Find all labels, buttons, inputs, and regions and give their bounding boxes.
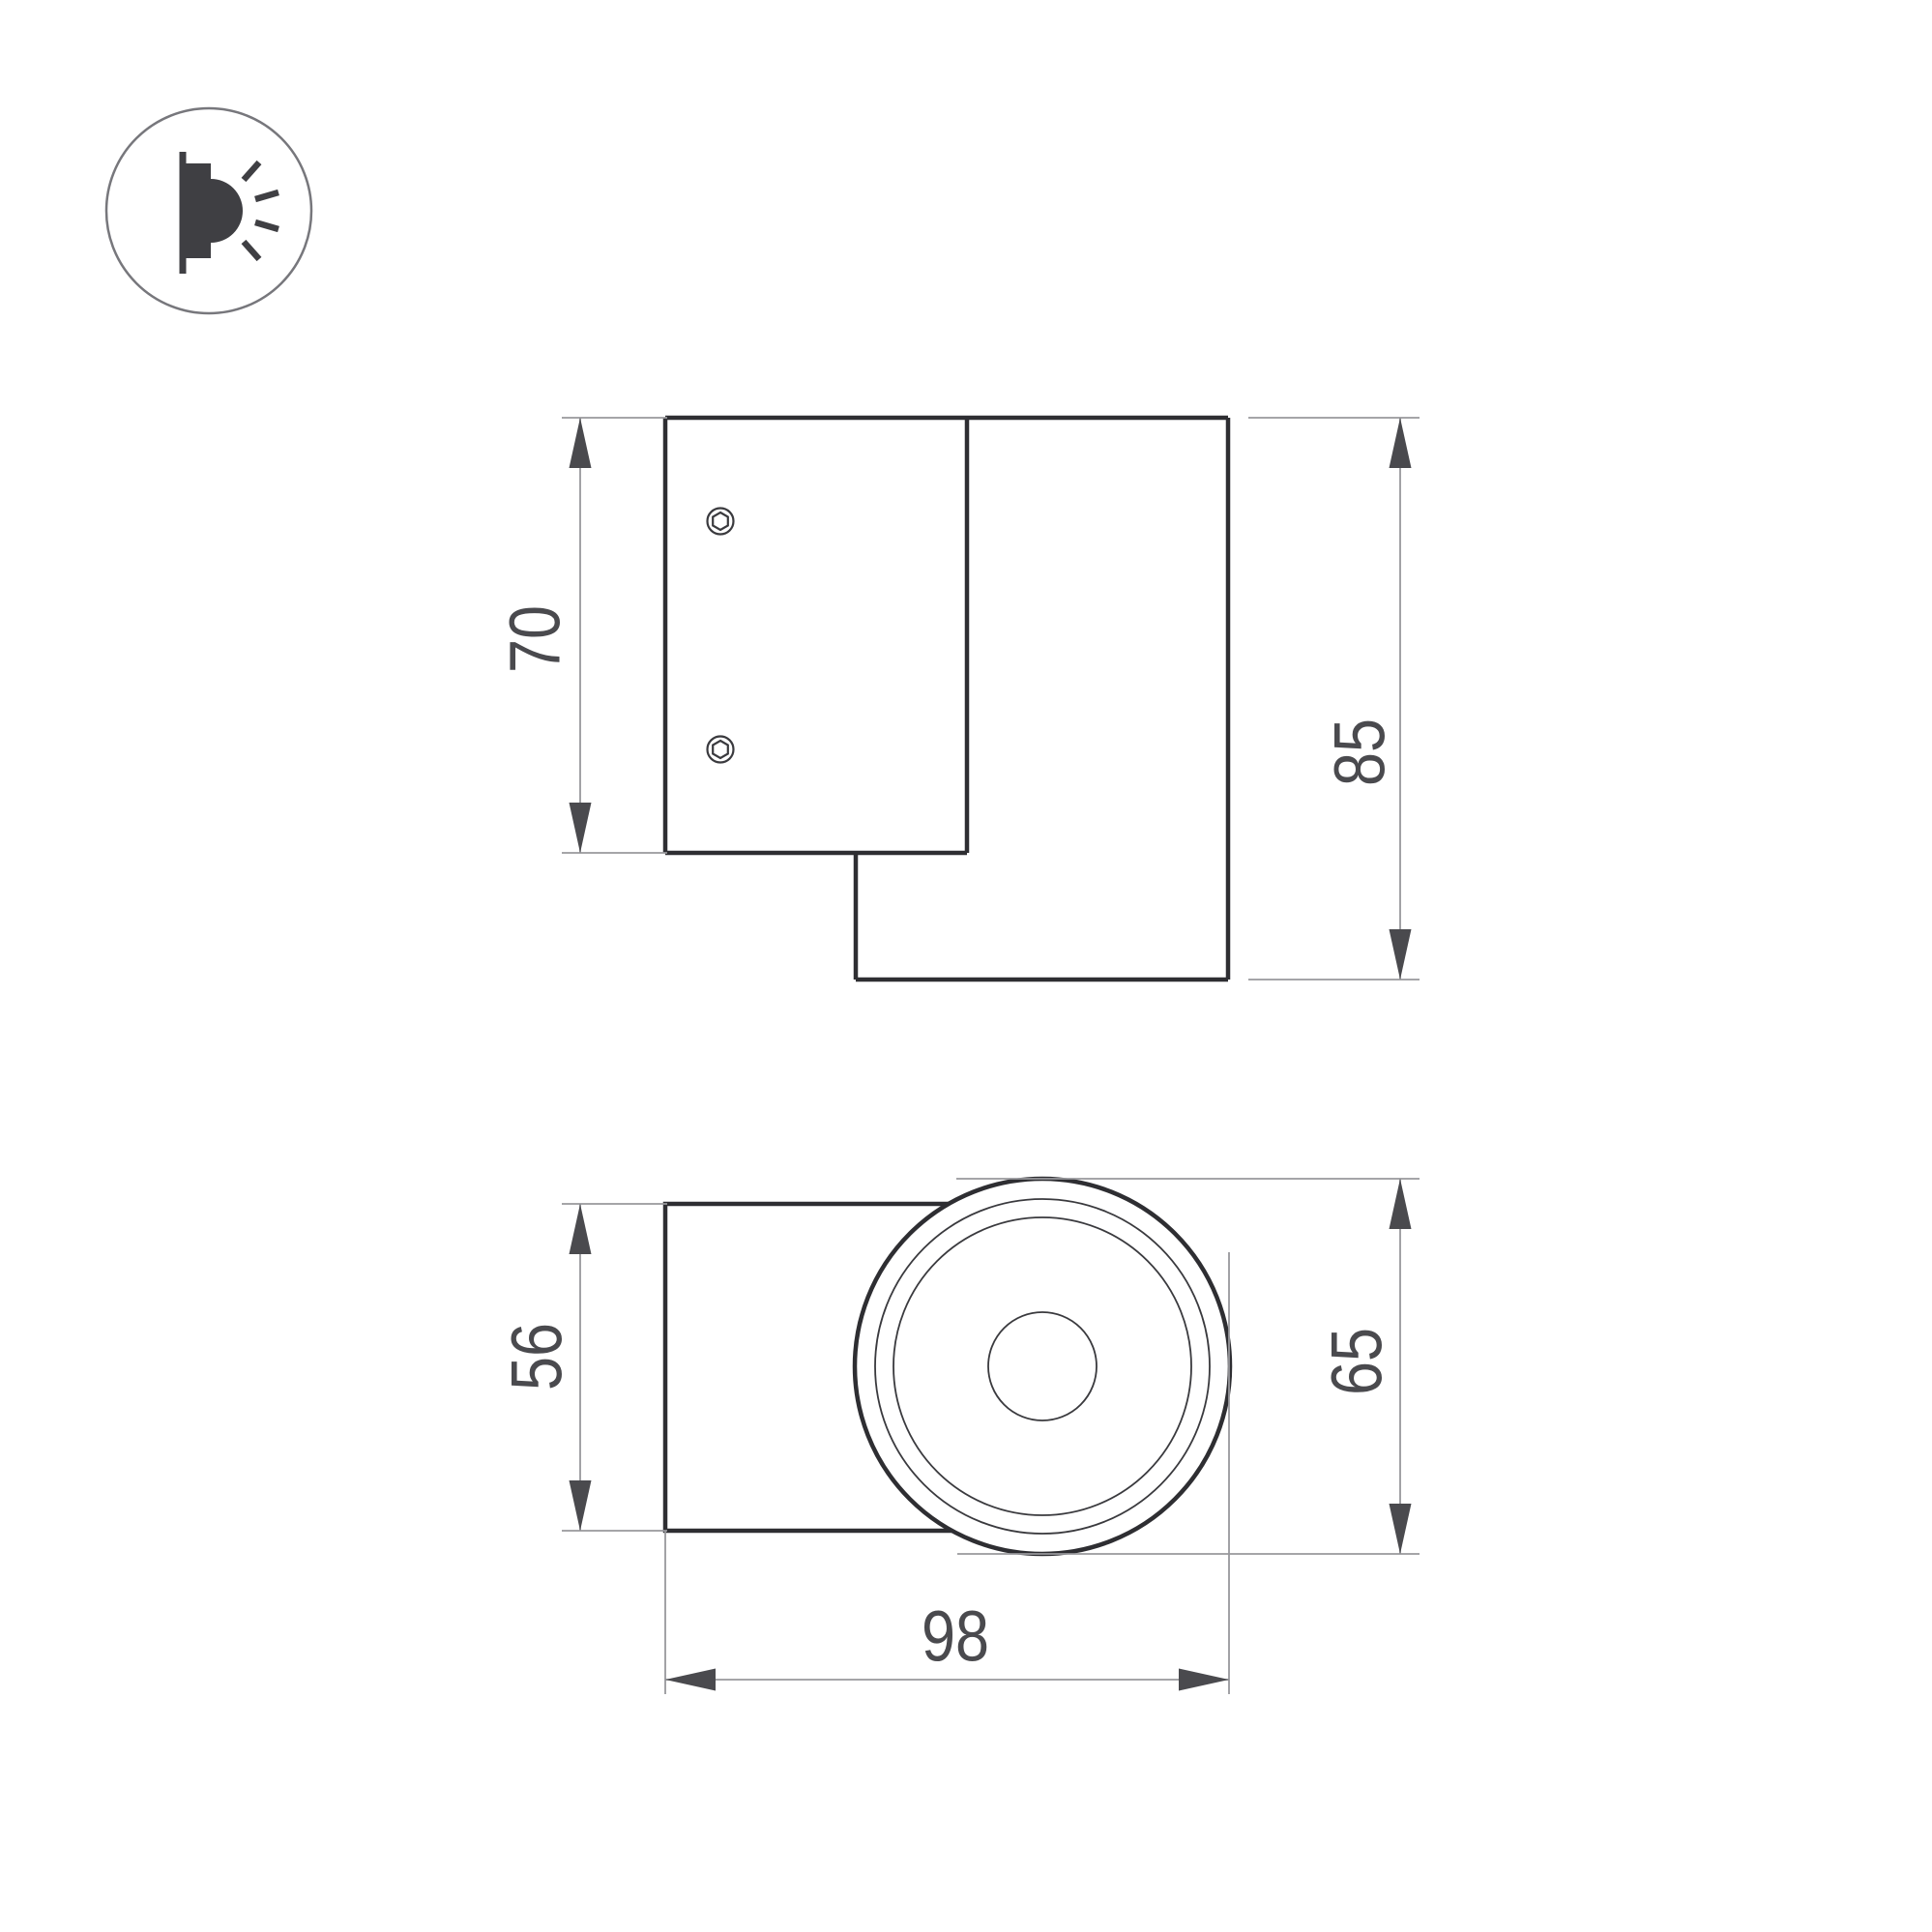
arrow-down-icon	[1390, 929, 1412, 980]
dim-85-label: 85	[1320, 718, 1400, 786]
dim-70-label: 70	[495, 605, 575, 673]
icon-light-dome	[211, 179, 243, 243]
arrow-down-icon	[570, 1480, 592, 1531]
technical-drawing-page: 70 85	[0, 0, 1932, 1932]
arrow-up-icon	[570, 418, 592, 468]
icon-lamp-body	[186, 163, 211, 258]
arrow-down-icon	[1390, 1504, 1412, 1554]
face-outer-circle	[855, 1179, 1230, 1554]
arrow-right-icon	[1179, 1669, 1229, 1691]
front-view: 56 65	[497, 1179, 1420, 1694]
screw-top-hex-icon	[713, 512, 728, 530]
dim-56-label: 56	[497, 1323, 577, 1390]
dim-98-label: 98	[922, 1596, 989, 1677]
dim-65-label: 65	[1317, 1328, 1397, 1395]
technical-drawing: 70 85	[0, 0, 1932, 1932]
side-view-outline	[665, 418, 1228, 980]
dim-70-lines	[562, 418, 667, 853]
arrow-up-icon	[1390, 1179, 1412, 1229]
dimension-plate-height: 70	[495, 418, 667, 853]
arrow-up-icon	[1390, 418, 1412, 468]
wall-light-icon	[106, 108, 311, 313]
dimension-body-height: 56	[497, 1204, 667, 1531]
arrow-down-icon	[570, 803, 592, 853]
side-view: 70 85	[495, 418, 1420, 980]
icon-light-rays	[244, 162, 278, 259]
arrow-left-icon	[665, 1669, 716, 1691]
mounting-screws	[708, 509, 734, 763]
dim-85-lines	[1248, 418, 1420, 980]
dimension-overall-height: 85	[1248, 418, 1420, 980]
arrow-up-icon	[570, 1204, 592, 1254]
icon-wall-line	[180, 152, 187, 274]
screw-bottom-hex-icon	[713, 741, 728, 758]
